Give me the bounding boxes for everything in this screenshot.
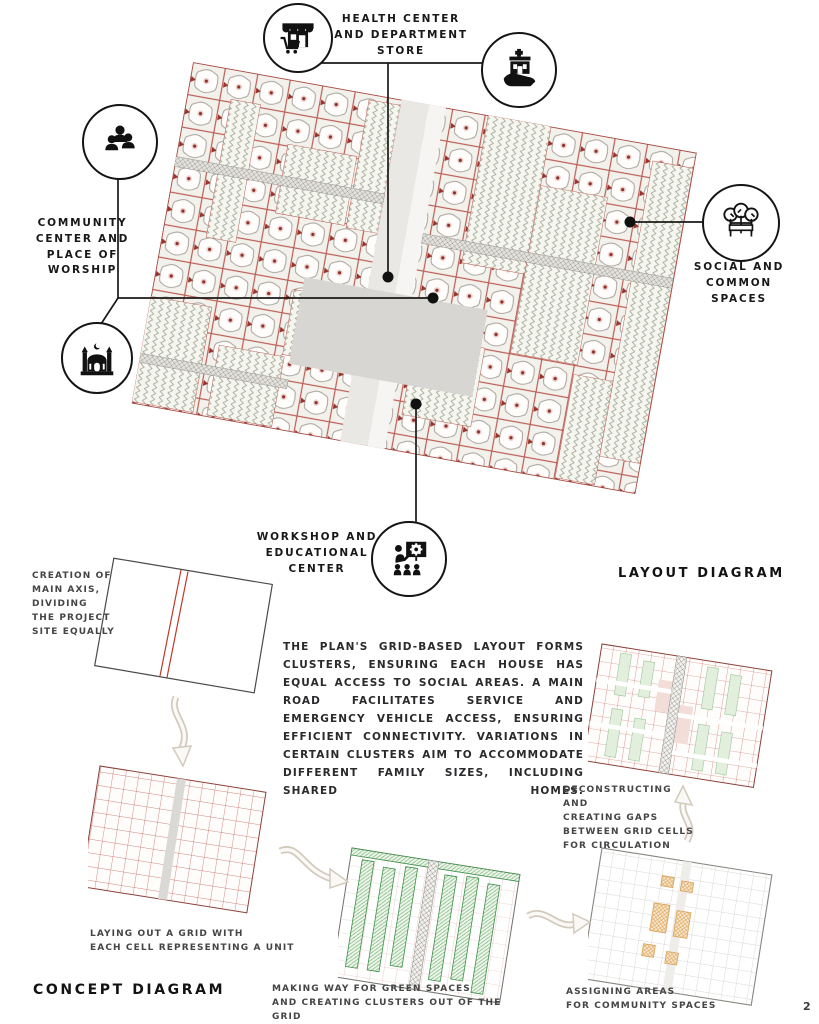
community-center-label: COMMUNITY CENTER AND PLACE OF WORSHIP	[20, 216, 145, 279]
health-center-bubble	[481, 32, 557, 108]
step3-caption: MAKING WAY FOR GREEN SPACES AND CREATING…	[272, 983, 507, 1024]
health-center-label: HEALTH CENTER AND DEPARTMENT STORE	[316, 12, 486, 59]
concept-diagram-title: CONCEPT DIAGRAM	[33, 982, 225, 998]
poster-page: HEALTH CENTER AND DEPARTMENT STORE COMMU…	[0, 0, 819, 1024]
trees-bench-icon	[716, 198, 766, 248]
step4-caption: ASSIGNING AREAS FOR COMMUNITY SPACES	[566, 986, 741, 1014]
social-spaces-label: SOCIAL AND COMMON SPACES	[664, 260, 814, 307]
presentation-icon	[386, 536, 432, 582]
workshop-label: WORKSHOP AND EDUCATIONAL CENTER	[247, 530, 387, 577]
step1-caption: CREATION OF MAIN AXIS, DIVIDING THE PROJ…	[32, 570, 147, 640]
plan-blocks	[132, 62, 697, 494]
page-number: 2	[803, 1000, 811, 1013]
step2-caption: LAYING OUT A GRID WITH EACH CELL REPRESE…	[90, 928, 320, 956]
concept-description: THE PLAN'S GRID-BASED LAYOUT FORMS CLUST…	[283, 638, 584, 800]
step2-grid-diagram	[88, 758, 300, 933]
department-store-icon	[276, 16, 320, 60]
site-plan-graphic	[132, 62, 697, 494]
site-plan	[132, 62, 697, 494]
mosque-bubble	[61, 322, 133, 394]
layout-diagram-title: LAYOUT DIAGRAM	[618, 566, 785, 581]
people-group-icon	[98, 120, 142, 164]
step5-caption: DECONSTRUCTING AND CREATING GAPS BETWEEN…	[563, 784, 698, 854]
health-center-icon	[496, 47, 542, 93]
social-spaces-bubble	[702, 184, 780, 262]
mosque-icon	[74, 335, 120, 381]
community-center-bubble	[82, 104, 158, 180]
